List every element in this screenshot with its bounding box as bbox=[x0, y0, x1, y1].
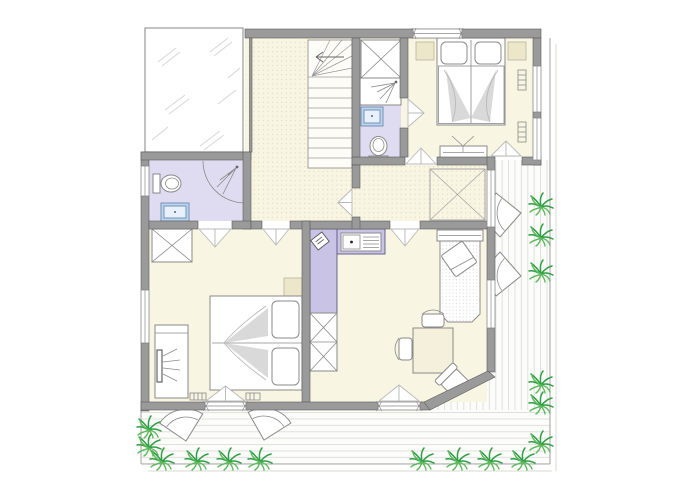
double-bed bbox=[437, 38, 505, 125]
wall-bottom bbox=[141, 402, 205, 410]
terrace-door bbox=[203, 401, 248, 411]
wall-living-top bbox=[420, 221, 487, 229]
pillow bbox=[272, 301, 299, 338]
wall-stairs bbox=[352, 38, 360, 157]
wall-living-right bbox=[487, 157, 495, 170]
wall-bedroom-bottom bbox=[352, 157, 405, 165]
wall-hallway-bottom bbox=[251, 221, 262, 229]
terrace-door bbox=[487, 170, 495, 227]
window bbox=[412, 28, 463, 39]
toilet-icon bbox=[153, 174, 181, 193]
window bbox=[533, 66, 541, 112]
nightstand bbox=[508, 42, 526, 60]
kitchen-sink bbox=[341, 233, 381, 251]
wall-ensuite bbox=[400, 128, 408, 157]
shelf-unit-icon bbox=[310, 313, 337, 371]
wall-living-right bbox=[487, 328, 495, 372]
pillow bbox=[272, 348, 299, 385]
wall-corridor-left bbox=[352, 165, 360, 188]
window bbox=[141, 166, 149, 196]
wall-corridor-left bbox=[352, 217, 360, 229]
wall-bathroom-bottom bbox=[149, 221, 198, 229]
wall-bottom bbox=[246, 402, 378, 410]
wardrobe-icon bbox=[361, 40, 401, 78]
wall-top bbox=[245, 29, 541, 38]
floor-plan bbox=[0, 0, 700, 500]
window bbox=[487, 280, 495, 328]
tv-dresser bbox=[155, 325, 188, 398]
pillow bbox=[441, 42, 467, 64]
washbasin bbox=[161, 203, 189, 221]
washbasin bbox=[361, 107, 383, 126]
nightstand bbox=[284, 278, 302, 297]
wall-bedroom-bottom bbox=[437, 157, 490, 165]
skylight-void bbox=[145, 28, 243, 152]
staircase bbox=[308, 40, 352, 168]
wall-right bbox=[533, 112, 541, 118]
dining-table bbox=[413, 328, 453, 373]
wall-right bbox=[533, 38, 541, 66]
wall-bathroom-right bbox=[243, 152, 251, 229]
wall-bathroom-bottom bbox=[232, 221, 251, 229]
wall-skylight-divider bbox=[250, 38, 253, 152]
daybed bbox=[437, 230, 483, 322]
wall-skylight-bottom bbox=[141, 152, 251, 160]
wall-ensuite bbox=[400, 38, 408, 98]
window bbox=[533, 118, 541, 160]
wall-left bbox=[141, 343, 149, 411]
wall-bedroom-kitchen bbox=[302, 221, 310, 402]
terrace-door bbox=[376, 401, 422, 411]
wardrobe-icon bbox=[152, 229, 192, 262]
wall-kitchen-top bbox=[310, 221, 390, 229]
tv-icon bbox=[157, 350, 162, 382]
wall-left bbox=[141, 196, 149, 290]
nightstand bbox=[416, 42, 434, 60]
pillow bbox=[475, 42, 501, 64]
window bbox=[141, 290, 149, 343]
double-bed bbox=[210, 296, 302, 390]
wall-living-right bbox=[487, 227, 495, 280]
